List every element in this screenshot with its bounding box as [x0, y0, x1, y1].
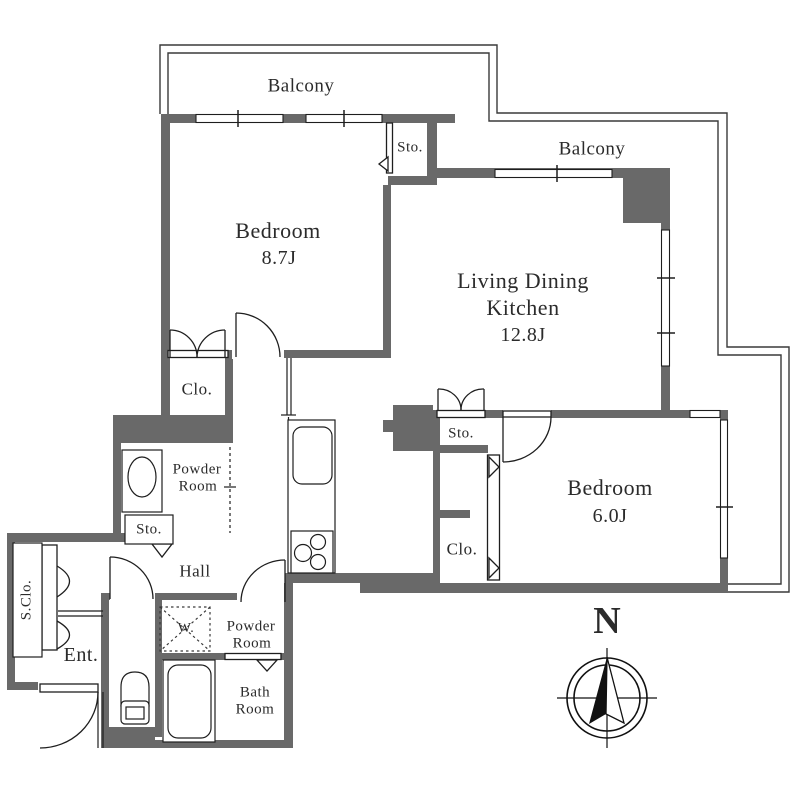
room-label-powder-upper-line2: Room [179, 480, 218, 495]
room-label-ldk-line2: Kitchen [486, 297, 559, 319]
room-label-shoe-closet: S.Clo. [20, 580, 35, 621]
balcony-railing [160, 45, 789, 592]
room-size-bedroom1: 8.7J [262, 248, 297, 268]
compass-needle-light [606, 657, 624, 723]
room-label-bedroom1: Bedroom [235, 220, 320, 242]
room-label-balcony-right: Balcony [559, 140, 626, 159]
room-label-bath-line2: Room [236, 703, 275, 718]
bathtub [168, 665, 211, 738]
room-label-bedroom2: Bedroom [567, 477, 652, 499]
room-label-closet-lower: Clo. [447, 541, 478, 558]
compass-north-label: N [593, 602, 620, 640]
room-size-bedroom2: 6.0J [593, 506, 628, 526]
open-boundaries [230, 417, 289, 533]
room-label-storage-mid: Sto. [448, 427, 474, 442]
room-size-ldk: 12.8J [500, 325, 545, 345]
compass-rose [557, 648, 657, 748]
room-label-hall: Hall [179, 563, 210, 580]
walls [7, 114, 728, 748]
floor-plan: Balcony Balcony Bedroom 8.7J Living Dini… [0, 0, 800, 800]
wash-basin [128, 457, 156, 497]
room-label-powder-lower-line2: Room [233, 637, 272, 652]
room-label-bath-line1: Bath [240, 686, 270, 701]
pillar [393, 405, 433, 451]
room-label-balcony-top: Balcony [268, 77, 335, 96]
kitchen-sink [293, 427, 332, 484]
room-label-closet-upper: Clo. [182, 381, 213, 398]
washing-machine-label: W. [178, 622, 194, 636]
floor-plan-drawing [0, 0, 800, 800]
room-label-storage-hall: Sto. [136, 523, 162, 538]
room-label-powder-upper-line1: Powder [173, 463, 222, 478]
pillar [623, 172, 670, 223]
room-label-powder-lower-line1: Powder [227, 620, 276, 635]
room-label-storage-top: Sto. [397, 141, 423, 156]
room-label-ldk-line1: Living Dining [457, 270, 589, 292]
room-label-entrance: Ent. [64, 645, 99, 665]
